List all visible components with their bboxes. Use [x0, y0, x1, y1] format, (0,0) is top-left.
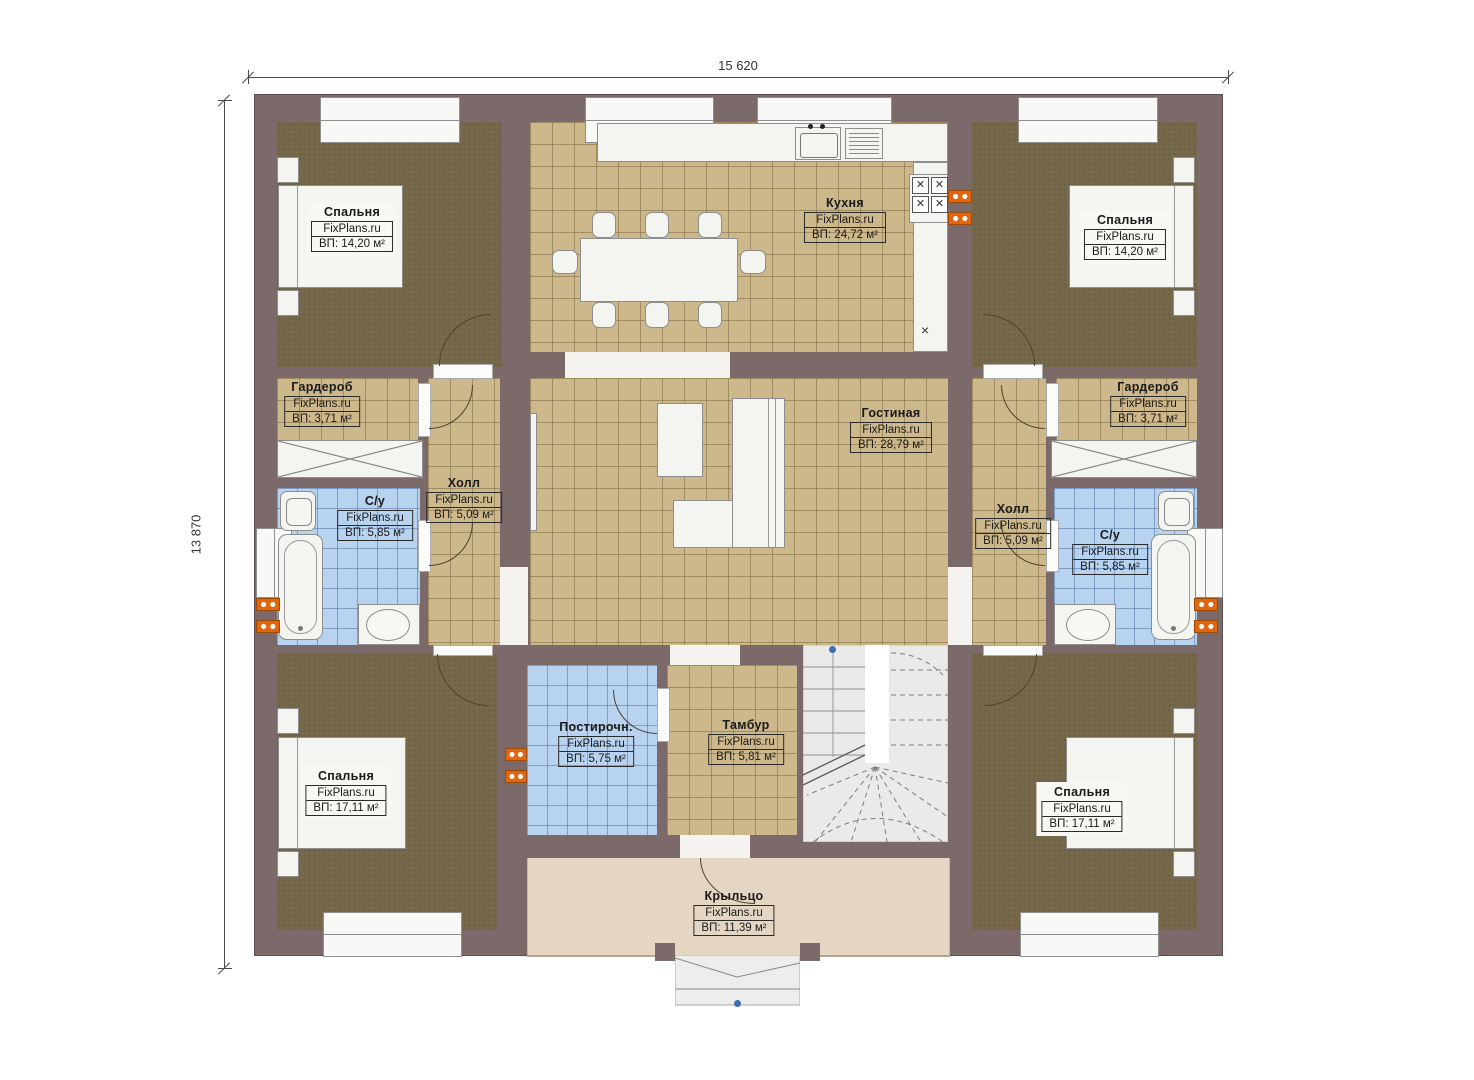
nightstand [277, 157, 299, 183]
room-label-living: Гостиная FixPlans.ru ВП: 28,79 м² [850, 406, 932, 453]
dimension-width-label: 15 620 [718, 58, 758, 73]
bed-headboard [1174, 738, 1193, 848]
nightstand [1173, 851, 1195, 877]
staircase [803, 645, 948, 842]
room-label-porch: Крыльцо FixPlans.ru ВП: 11,39 м² [693, 889, 774, 936]
window [323, 912, 462, 957]
room-label-su-left: С/у FixPlans.ru ВП: 5,85 м² [337, 494, 413, 541]
kitchen-dish-rack [845, 128, 883, 159]
room-label-kitchen: Кухня FixPlans.ru ВП: 24,72 м² [804, 196, 886, 243]
wardrobe-cabinet [277, 440, 423, 478]
dishwasher-mark: × [921, 322, 929, 338]
brand-watermark: FixPlans.ru [338, 511, 412, 525]
opening-kitchen-living [565, 352, 730, 378]
chair [592, 302, 616, 328]
room-label-bedroom-bottom-right: Спальня FixPlans.ru ВП: 17,11 м² [1036, 782, 1127, 836]
room-area: ВП: 5,85 м² [1073, 559, 1147, 574]
porch-wall-stub [800, 943, 820, 961]
room-name: Спальня [305, 769, 386, 783]
door-leaf [1046, 383, 1059, 437]
bathtub [1151, 534, 1196, 640]
room-name: Холл [426, 476, 502, 490]
brand-watermark: FixPlans.ru [427, 493, 501, 507]
nightstand [277, 708, 299, 734]
brand-watermark: FixPlans.ru [851, 423, 931, 437]
wall-vent [505, 770, 527, 783]
room-label-garderob-left: Гардероб FixPlans.ru ВП: 3,71 м² [284, 380, 360, 427]
brand-watermark: FixPlans.ru [805, 213, 885, 227]
stairs-start-marker [829, 646, 836, 653]
floor-plan-canvas: 15 620 13 870 [0, 0, 1474, 1080]
room-label-bedroom-bottom-left: Спальня FixPlans.ru ВП: 17,11 м² [300, 766, 391, 820]
room-label-hall-left: Холл FixPlans.ru ВП: 5,09 м² [426, 476, 502, 523]
room-name: Спальня [1084, 213, 1166, 227]
brand-watermark: FixPlans.ru [1111, 397, 1185, 411]
room-name: С/у [337, 494, 413, 508]
room-name: Крыльцо [693, 889, 774, 903]
stove-burners: ✕✕ ✕✕ [912, 177, 948, 213]
washing-machine [1158, 491, 1194, 531]
opening-hall-left-living [500, 567, 528, 645]
room-label-laundry: Постирочн. FixPlans.ru ВП: 5,75 м² [558, 720, 634, 767]
brand-watermark: FixPlans.ru [306, 786, 385, 800]
room-name: Спальня [311, 205, 393, 219]
nightstand [277, 851, 299, 877]
room-area: ВП: 17,11 м² [1042, 816, 1121, 831]
room-area: ВП: 28,79 м² [851, 437, 931, 452]
room-area: ВП: 5,81 м² [709, 749, 783, 764]
washing-machine [280, 491, 316, 531]
brand-watermark: FixPlans.ru [1073, 545, 1147, 559]
coffee-table [657, 403, 703, 477]
bed-headboard [279, 738, 298, 848]
room-name: Гостиная [850, 406, 932, 420]
bed-headboard [1174, 186, 1193, 287]
brand-watermark: FixPlans.ru [1042, 802, 1121, 816]
sink-basin [1066, 609, 1110, 641]
room-name: Кухня [804, 196, 886, 210]
room-area: ВП: 5,09 м² [427, 507, 501, 522]
bathtub-basin [284, 540, 317, 634]
room-label-bedroom-top-left: Спальня FixPlans.ru ВП: 14,20 м² [306, 202, 398, 256]
room-label-su-right: С/у FixPlans.ru ВП: 5,85 м² [1072, 528, 1148, 575]
chair [698, 212, 722, 238]
sofa-chaise [673, 500, 733, 548]
room-name: Гардероб [1110, 380, 1186, 394]
room-area: ВП: 17,11 м² [306, 800, 385, 815]
chair [740, 250, 766, 274]
room-name: Постирочн. [558, 720, 634, 734]
room-area: ВП: 3,71 м² [285, 411, 359, 426]
window [1020, 912, 1159, 957]
brand-watermark: FixPlans.ru [559, 737, 633, 751]
room-area: ВП: 5,75 м² [559, 751, 633, 766]
sink-basin [366, 609, 410, 641]
door-leaf [433, 364, 493, 379]
brand-watermark: FixPlans.ru [694, 906, 773, 920]
brand-watermark: FixPlans.ru [1085, 230, 1165, 244]
bed-headboard [279, 186, 298, 287]
room-label-bedroom-top-right: Спальня FixPlans.ru ВП: 14,20 м² [1079, 210, 1171, 264]
opening-tambur-porch [680, 835, 750, 858]
wall-vent [1194, 620, 1218, 633]
chair [645, 302, 669, 328]
kitchen-counter-top [597, 123, 948, 162]
room-label-hall-right: Холл FixPlans.ru ВП: 5,09 м² [975, 502, 1051, 549]
wall-vent [505, 748, 527, 761]
brand-watermark: FixPlans.ru [709, 735, 783, 749]
wall-vent [1194, 598, 1218, 611]
room-name: Тамбур [708, 718, 784, 732]
opening-hall-right-living [948, 567, 972, 645]
nightstand [277, 290, 299, 316]
brand-watermark: FixPlans.ru [285, 397, 359, 411]
room-name: Холл [975, 502, 1051, 516]
sofa [732, 398, 785, 548]
wall-vent [256, 598, 280, 611]
brand-watermark: FixPlans.ru [976, 519, 1050, 533]
bathtub-basin [1157, 540, 1190, 634]
nightstand [1173, 157, 1195, 183]
brand-watermark: FixPlans.ru [312, 222, 392, 236]
nightstand [1173, 290, 1195, 316]
room-area: ВП: 3,71 м² [1111, 411, 1185, 426]
window [320, 97, 460, 143]
sofa-seam [768, 399, 776, 547]
opening-living-tambur [670, 645, 740, 665]
dimension-line-left [224, 100, 225, 968]
kitchen-sink [795, 127, 841, 160]
porch-wall-stub [655, 943, 675, 961]
room-area: ВП: 24,72 м² [805, 227, 885, 242]
chair [698, 302, 722, 328]
room-area: ВП: 5,85 м² [338, 525, 412, 540]
chair [645, 212, 669, 238]
room-name: Спальня [1041, 785, 1122, 799]
dimension-height-label: 13 870 [188, 515, 203, 555]
wall-vent [256, 620, 280, 633]
room-area: ВП: 5,09 м² [976, 533, 1050, 548]
entry-marker [734, 1000, 741, 1007]
door-leaf [657, 688, 670, 742]
room-area: ВП: 11,39 м² [694, 920, 773, 935]
bathtub [278, 534, 323, 640]
tv-unit [530, 413, 537, 531]
room-label-tambur: Тамбур FixPlans.ru ВП: 5,81 м² [708, 718, 784, 765]
room-label-garderob-right: Гардероб FixPlans.ru ВП: 3,71 м² [1110, 380, 1186, 427]
chair [592, 212, 616, 238]
wall-vent [948, 212, 972, 225]
room-area: ВП: 14,20 м² [312, 236, 392, 251]
dining-table [580, 238, 738, 302]
window [1018, 97, 1158, 143]
dimension-line-top [248, 77, 1228, 78]
wardrobe-cabinet [1051, 440, 1197, 478]
room-name: Гардероб [284, 380, 360, 394]
wall-vent [948, 190, 972, 203]
nightstand [1173, 708, 1195, 734]
room-area: ВП: 14,20 м² [1085, 244, 1165, 259]
door-leaf [983, 364, 1043, 379]
room-name: С/у [1072, 528, 1148, 542]
chair [552, 250, 578, 274]
